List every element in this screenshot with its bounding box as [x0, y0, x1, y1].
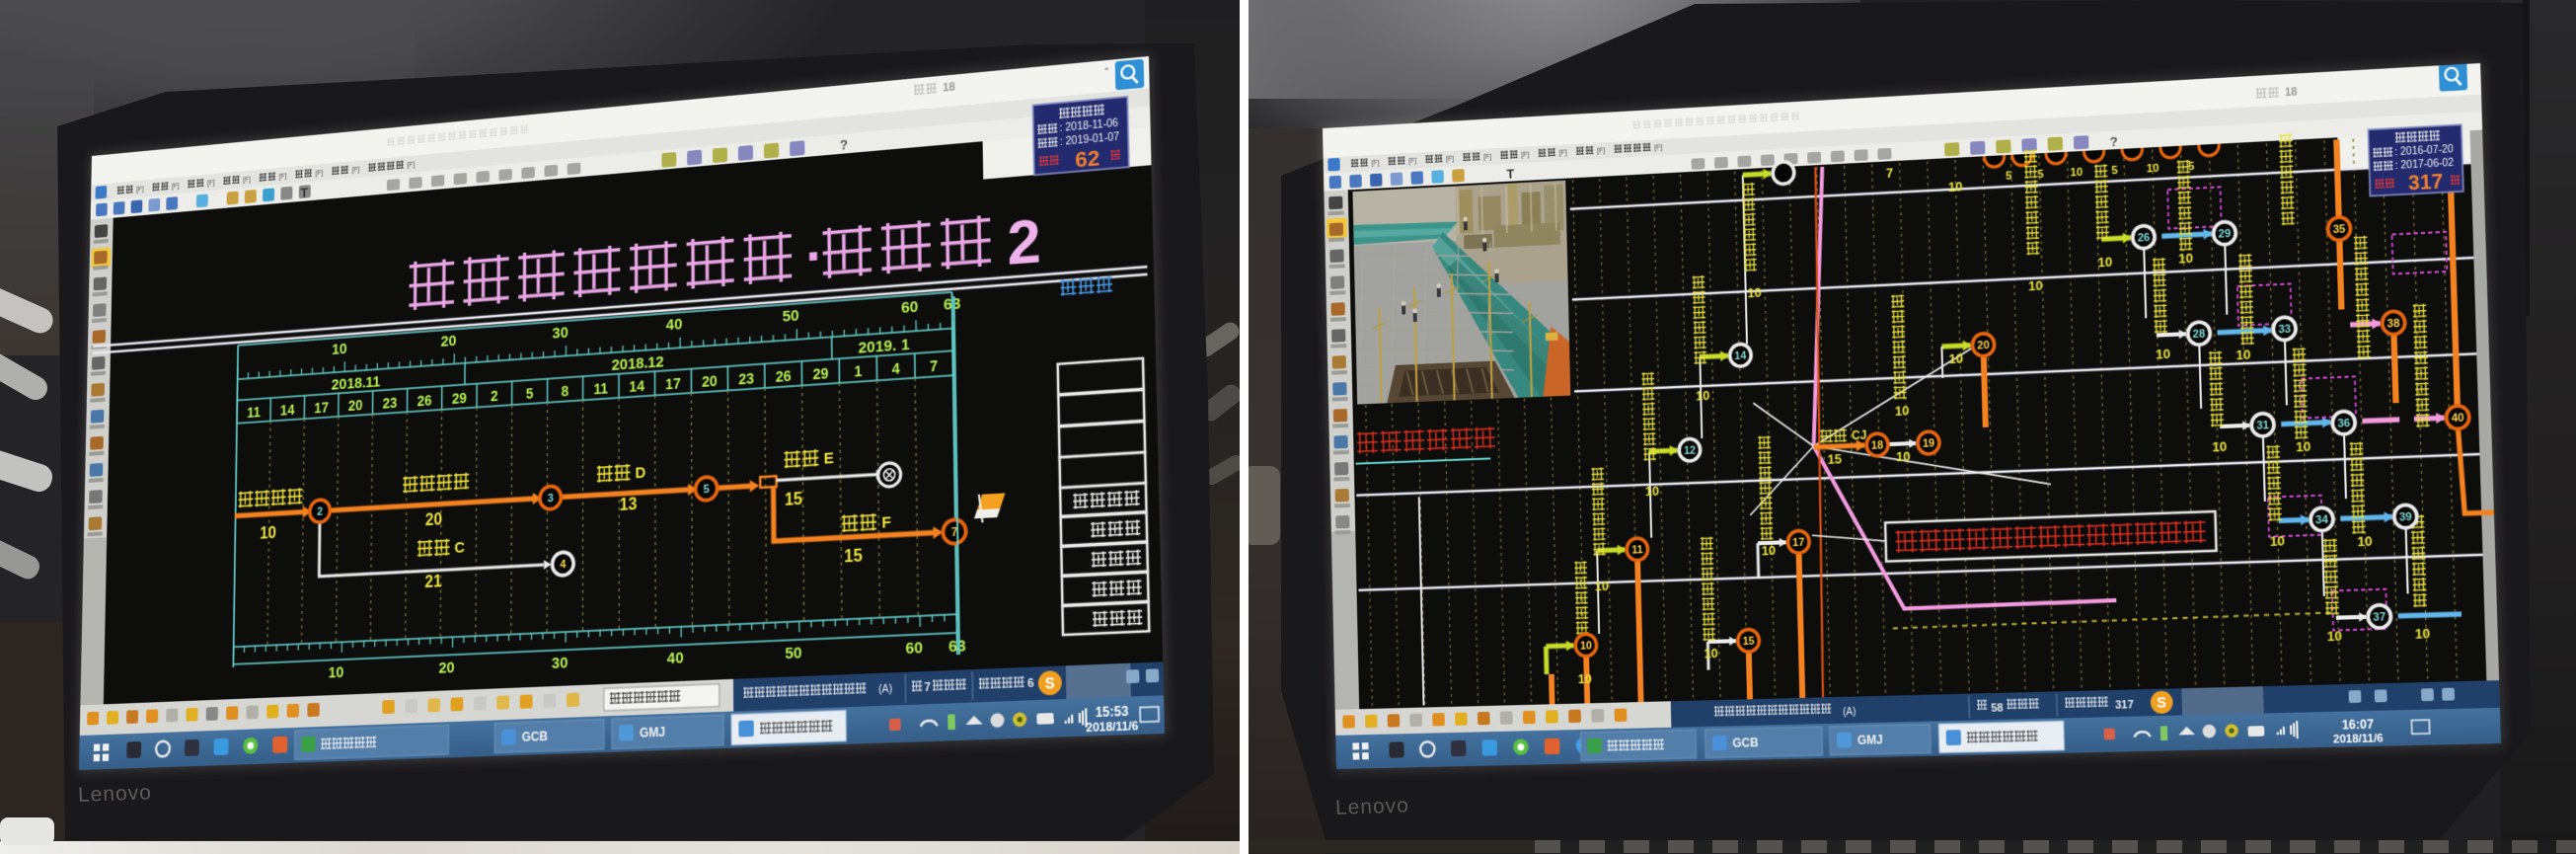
svg-text:S: S — [1045, 674, 1056, 693]
svg-text:18: 18 — [943, 81, 955, 95]
svg-text:7: 7 — [1886, 166, 1894, 181]
svg-text:30: 30 — [552, 323, 568, 342]
svg-text:21: 21 — [424, 574, 441, 592]
svg-text:23: 23 — [383, 394, 398, 412]
svg-text:2: 2 — [317, 506, 323, 519]
svg-text:20: 20 — [438, 658, 454, 676]
svg-text:34: 34 — [2315, 513, 2328, 527]
svg-text:15:53: 15:53 — [1096, 705, 1129, 721]
svg-text:4: 4 — [892, 359, 901, 377]
svg-text:10: 10 — [1948, 351, 1963, 367]
svg-text:T: T — [301, 185, 309, 200]
svg-text:317: 317 — [2408, 171, 2444, 195]
svg-text:[F]: [F] — [1521, 151, 1529, 159]
svg-text:1: 1 — [854, 362, 862, 380]
svg-text:10: 10 — [2296, 439, 2311, 455]
svg-text:2018.: 2018. — [612, 353, 648, 374]
svg-text:[F]: [F] — [1372, 160, 1380, 168]
svg-text:10: 10 — [2097, 255, 2112, 271]
svg-text:11: 11 — [1631, 544, 1643, 557]
svg-text:60: 60 — [905, 638, 923, 658]
svg-text:3: 3 — [548, 493, 554, 505]
svg-text:40: 40 — [666, 314, 683, 333]
svg-text:(A): (A) — [1843, 707, 1856, 719]
svg-text:?: ? — [2109, 134, 2117, 149]
svg-text:5: 5 — [2006, 170, 2012, 183]
svg-text:60: 60 — [901, 297, 919, 317]
svg-text:15: 15 — [785, 491, 802, 510]
svg-text:20: 20 — [1977, 339, 1990, 351]
svg-text:58: 58 — [1991, 702, 2004, 715]
svg-text:[F]: [F] — [1446, 155, 1454, 163]
svg-text:-: - — [1104, 62, 1109, 76]
svg-text:(A): (A) — [878, 683, 892, 695]
svg-text:T: T — [1506, 167, 1514, 182]
svg-text:[F]: [F] — [243, 176, 251, 184]
svg-text:11: 11 — [594, 380, 609, 398]
svg-text:17: 17 — [1792, 536, 1804, 549]
svg-text:10: 10 — [2028, 278, 2043, 294]
svg-text:13: 13 — [620, 496, 638, 514]
svg-text:6: 6 — [1027, 677, 1034, 691]
svg-text:317: 317 — [2115, 699, 2134, 712]
svg-text:11: 11 — [247, 404, 261, 421]
svg-text:33: 33 — [2278, 323, 2291, 337]
svg-text:10: 10 — [2156, 347, 2170, 362]
svg-text:18: 18 — [1871, 439, 1884, 452]
svg-text:14: 14 — [280, 402, 295, 420]
svg-text:[F]: [F] — [1597, 147, 1605, 155]
svg-text:20: 20 — [348, 397, 363, 415]
svg-text:10: 10 — [2327, 629, 2343, 645]
svg-text:50: 50 — [785, 643, 802, 662]
svg-text:10: 10 — [1895, 404, 1910, 420]
svg-text:15: 15 — [844, 547, 863, 567]
svg-text:[F]: [F] — [316, 170, 324, 178]
svg-text:·: · — [805, 223, 824, 287]
svg-text:17: 17 — [314, 399, 329, 417]
svg-text:14: 14 — [1734, 349, 1746, 362]
svg-text:19: 19 — [1923, 437, 1935, 450]
svg-text:62: 62 — [1075, 145, 1100, 173]
svg-text:[F]: [F] — [1483, 153, 1491, 161]
svg-text:28: 28 — [2193, 328, 2206, 342]
svg-text:10: 10 — [2270, 533, 2285, 549]
svg-text:26: 26 — [417, 392, 432, 410]
svg-text:10: 10 — [1696, 388, 1710, 403]
svg-text:29: 29 — [452, 390, 467, 408]
svg-text:30: 30 — [552, 653, 568, 671]
svg-text:5: 5 — [526, 385, 534, 402]
svg-text:10: 10 — [1948, 180, 1963, 195]
svg-text:2018.: 2018. — [332, 373, 366, 393]
svg-text:2: 2 — [491, 387, 498, 404]
svg-text:[F]: [F] — [279, 173, 287, 181]
svg-text:10: 10 — [1896, 449, 1911, 464]
svg-text:17: 17 — [665, 375, 681, 393]
svg-text:10: 10 — [2415, 626, 2431, 642]
svg-text:[F]: [F] — [408, 161, 416, 169]
svg-text:?: ? — [840, 136, 848, 153]
svg-text:29: 29 — [2219, 227, 2232, 241]
svg-text:15: 15 — [1827, 452, 1842, 467]
svg-text:11: 11 — [365, 372, 380, 391]
svg-text:GCB: GCB — [522, 731, 548, 745]
svg-text:10: 10 — [1578, 671, 1592, 686]
svg-text:F: F — [881, 512, 891, 531]
svg-text:29: 29 — [812, 364, 828, 382]
svg-text:39: 39 — [2399, 510, 2412, 524]
svg-text:2018/11/6: 2018/11/6 — [1086, 721, 1139, 736]
svg-text:10: 10 — [260, 525, 276, 544]
svg-text:38: 38 — [2387, 317, 2400, 331]
svg-text:23: 23 — [738, 370, 754, 388]
svg-text:10: 10 — [2357, 534, 2373, 550]
svg-text:16:07: 16:07 — [2342, 719, 2374, 733]
svg-text:10: 10 — [1762, 543, 1777, 558]
svg-text:10: 10 — [2212, 439, 2227, 455]
svg-text:10: 10 — [1595, 579, 1609, 593]
svg-text:50: 50 — [783, 306, 799, 326]
svg-text:10: 10 — [2178, 251, 2193, 267]
svg-text:[F]: [F] — [207, 179, 215, 187]
svg-text:[F]: [F] — [352, 166, 360, 174]
svg-text:10: 10 — [2235, 348, 2250, 363]
svg-text:26: 26 — [776, 367, 792, 385]
svg-text:10: 10 — [2147, 162, 2159, 176]
svg-text:2019.: 2019. — [858, 336, 896, 356]
svg-text:5: 5 — [2037, 168, 2044, 181]
svg-text:GMJ: GMJ — [1857, 735, 1883, 747]
svg-text:37: 37 — [2373, 611, 2386, 625]
svg-text:14: 14 — [629, 377, 644, 395]
svg-text:15: 15 — [1742, 635, 1754, 648]
svg-text:GMJ: GMJ — [640, 726, 665, 740]
svg-text:[F]: [F] — [136, 186, 144, 194]
svg-text:20: 20 — [702, 372, 718, 390]
svg-text:10: 10 — [1645, 484, 1659, 499]
svg-text:8: 8 — [562, 382, 569, 399]
svg-text:40: 40 — [2451, 412, 2463, 426]
svg-text:1: 1 — [901, 335, 910, 353]
svg-text:C: C — [454, 538, 465, 557]
svg-text:D: D — [635, 463, 645, 482]
svg-text:12: 12 — [1684, 444, 1696, 457]
svg-text:[F]: [F] — [1654, 144, 1662, 152]
svg-text:10: 10 — [328, 662, 343, 681]
svg-text:5: 5 — [2111, 164, 2118, 177]
svg-text:7: 7 — [930, 357, 938, 375]
svg-text:36: 36 — [2337, 417, 2350, 430]
svg-text:2: 2 — [1007, 206, 1041, 278]
svg-text:2018/11/6: 2018/11/6 — [2333, 733, 2384, 746]
svg-text:26: 26 — [2138, 231, 2151, 245]
svg-text:20: 20 — [441, 331, 457, 349]
svg-text:CJ: CJ — [1852, 429, 1867, 442]
svg-text:10: 10 — [2071, 166, 2084, 180]
svg-text:[F]: [F] — [1408, 157, 1416, 165]
svg-text:31: 31 — [2256, 419, 2269, 432]
svg-text:10: 10 — [1704, 646, 1718, 660]
svg-text:[F]: [F] — [1559, 149, 1567, 157]
svg-text:GCB: GCB — [1732, 738, 1758, 750]
svg-text:E: E — [824, 448, 834, 467]
svg-text:S: S — [2157, 694, 2166, 711]
svg-text:20: 20 — [425, 511, 442, 530]
svg-text:4: 4 — [560, 559, 566, 572]
svg-text:63: 63 — [948, 636, 966, 656]
svg-text:7: 7 — [924, 681, 931, 694]
svg-text:35: 35 — [2332, 223, 2345, 237]
svg-text:10: 10 — [1747, 285, 1762, 300]
svg-text:5: 5 — [704, 484, 711, 497]
svg-text:18: 18 — [2285, 86, 2298, 100]
svg-text:10: 10 — [332, 340, 347, 358]
svg-text:10: 10 — [1580, 640, 1592, 653]
svg-text:40: 40 — [667, 648, 684, 666]
svg-text:[F]: [F] — [172, 183, 180, 191]
svg-text:12: 12 — [647, 352, 664, 371]
